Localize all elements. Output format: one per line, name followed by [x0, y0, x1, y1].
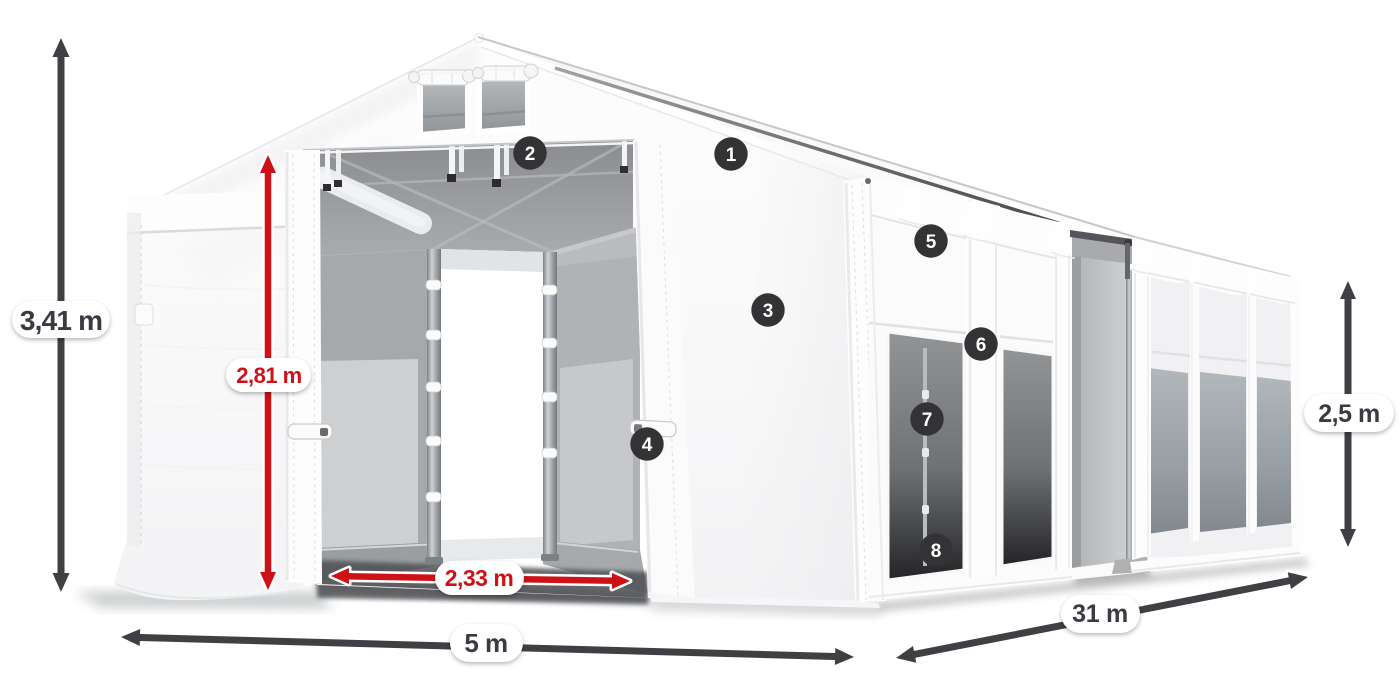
svg-text:6: 6 — [976, 335, 987, 356]
svg-text:1: 1 — [726, 145, 737, 166]
svg-text:3,41 m: 3,41 m — [20, 305, 102, 336]
svg-text:3: 3 — [763, 301, 774, 322]
svg-text:4: 4 — [642, 435, 653, 456]
svg-text:5 m: 5 m — [464, 628, 507, 658]
svg-text:8: 8 — [931, 541, 942, 562]
svg-text:7: 7 — [922, 410, 933, 431]
svg-text:2,33 m: 2,33 m — [445, 565, 514, 591]
svg-text:2,5 m: 2,5 m — [1318, 400, 1379, 428]
svg-text:2: 2 — [525, 144, 536, 165]
svg-text:2,81 m: 2,81 m — [236, 363, 302, 388]
svg-text:31 m: 31 m — [1072, 600, 1128, 628]
svg-text:5: 5 — [926, 232, 937, 253]
